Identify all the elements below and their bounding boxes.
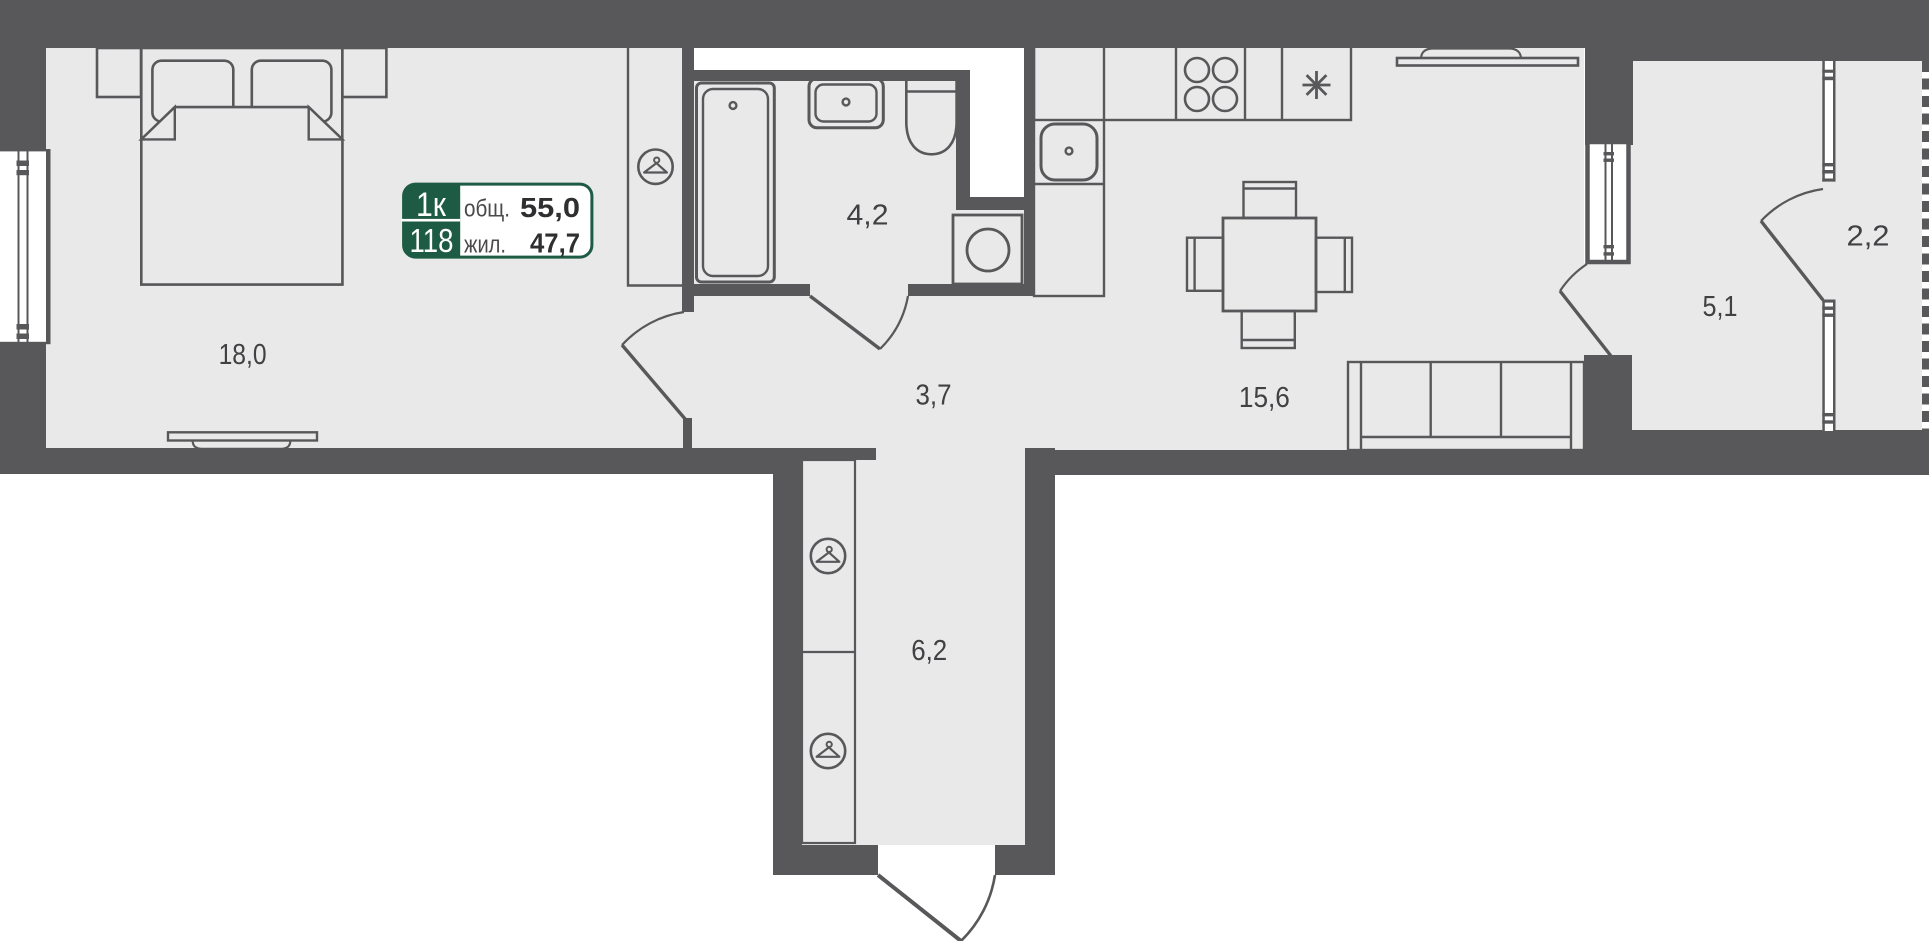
svg-text:жил.: жил. — [464, 231, 506, 258]
svg-text:118: 118 — [410, 222, 454, 259]
svg-text:6,2: 6,2 — [911, 635, 947, 667]
svg-text:15,6: 15,6 — [1239, 382, 1290, 414]
svg-text:общ.: общ. — [464, 196, 510, 223]
svg-text:4,2: 4,2 — [847, 200, 889, 232]
svg-text:2,2: 2,2 — [1847, 221, 1890, 253]
svg-text:1к: 1к — [416, 186, 447, 224]
svg-text:47,7: 47,7 — [530, 228, 580, 259]
svg-text:3,7: 3,7 — [916, 380, 952, 412]
svg-text:18,0: 18,0 — [219, 339, 267, 371]
svg-text:5,1: 5,1 — [1703, 291, 1738, 323]
svg-text:55,0: 55,0 — [520, 192, 580, 223]
